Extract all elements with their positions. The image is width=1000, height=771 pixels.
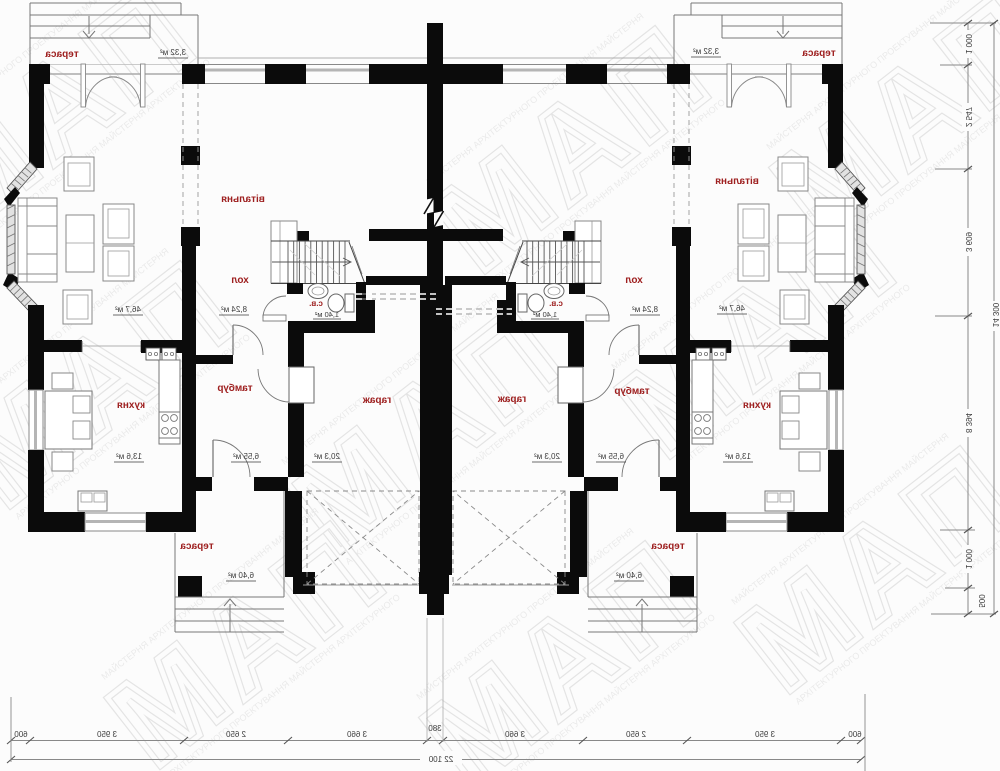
- svg-text:кухня: кухня: [743, 400, 771, 411]
- svg-text:46,7 м²: 46,7 м²: [719, 304, 745, 313]
- svg-text:2 650: 2 650: [625, 730, 646, 739]
- svg-text:14 300: 14 300: [991, 302, 1000, 327]
- svg-text:3 950: 3 950: [96, 730, 117, 739]
- svg-text:1,40 м²: 1,40 м²: [314, 310, 339, 319]
- svg-text:тераса: тераса: [180, 541, 214, 552]
- svg-text:хол: хол: [625, 275, 643, 286]
- svg-text:вітальня: вітальня: [715, 176, 759, 187]
- svg-text:8 394: 8 394: [964, 412, 973, 433]
- svg-text:500: 500: [977, 594, 986, 608]
- svg-text:1,40 м²: 1,40 м²: [532, 310, 557, 319]
- svg-text:8,24 м²: 8,24 м²: [632, 305, 658, 314]
- svg-text:46,7 м²: 46,7 м²: [115, 305, 141, 314]
- svg-text:22 100: 22 100: [428, 755, 453, 764]
- svg-text:600: 600: [848, 730, 862, 739]
- svg-text:гараж: гараж: [362, 395, 391, 406]
- svg-text:3 609: 3 609: [964, 231, 973, 252]
- svg-text:3 950: 3 950: [754, 730, 775, 739]
- svg-text:6,55 м²: 6,55 м²: [598, 452, 624, 461]
- svg-text:380: 380: [428, 724, 442, 733]
- svg-text:3,32 м²: 3,32 м²: [693, 47, 719, 56]
- svg-text:6,40 м²: 6,40 м²: [228, 571, 254, 580]
- svg-text:13,6 м²: 13,6 м²: [725, 452, 751, 461]
- svg-text:3 660: 3 660: [346, 730, 367, 739]
- svg-text:20,3 м²: 20,3 м²: [534, 452, 560, 461]
- svg-text:6,40 м²: 6,40 м²: [616, 571, 642, 580]
- svg-text:вітальня: вітальня: [221, 194, 265, 205]
- svg-text:1 000: 1 000: [964, 33, 973, 54]
- svg-text:20,3 м²: 20,3 м²: [314, 452, 340, 461]
- svg-text:6,55 м²: 6,55 м²: [233, 452, 259, 461]
- svg-text:с.в.: с.в.: [309, 299, 323, 308]
- svg-text:тамбур: тамбур: [217, 382, 252, 394]
- svg-text:хол: хол: [231, 275, 249, 286]
- svg-text:600: 600: [14, 730, 28, 739]
- svg-text:13,6 м²: 13,6 м²: [116, 452, 142, 461]
- svg-text:тамбур: тамбур: [614, 385, 649, 397]
- svg-text:3,32 м²: 3,32 м²: [160, 48, 186, 57]
- svg-text:тераса: тераса: [45, 49, 79, 60]
- svg-text:с.в.: с.в.: [549, 299, 563, 308]
- svg-text:8,24 м²: 8,24 м²: [221, 305, 247, 314]
- svg-text:2 547: 2 547: [964, 106, 973, 127]
- svg-text:тераса: тераса: [651, 541, 685, 552]
- svg-text:тераса: тераса: [802, 48, 836, 59]
- svg-text:2 650: 2 650: [225, 730, 246, 739]
- svg-text:1 000: 1 000: [964, 548, 973, 569]
- svg-text:кухня: кухня: [117, 400, 145, 411]
- svg-text:гараж: гараж: [497, 394, 526, 405]
- svg-text:3 660: 3 660: [504, 730, 525, 739]
